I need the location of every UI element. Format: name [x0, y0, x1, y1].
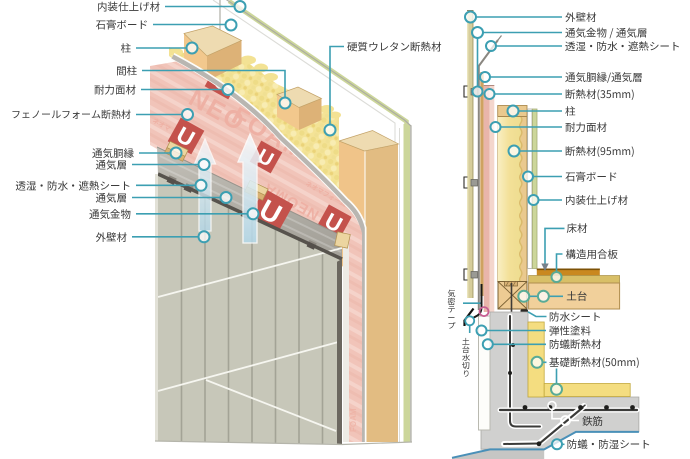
svg-text:通気層: 通気層 — [96, 158, 128, 173]
svg-text:耐力面材: 耐力面材 — [565, 120, 607, 135]
svg-text:内装仕上げ材: 内装仕上げ材 — [97, 0, 160, 15]
svg-text:鉄筋: 鉄筋 — [582, 414, 603, 429]
svg-text:耐力面材: 耐力面材 — [94, 83, 136, 98]
svg-text:基礎断熱材(50mm): 基礎断熱材(50mm) — [549, 355, 640, 370]
svg-text:土台水切り: 土台水切り — [461, 337, 472, 378]
svg-text:弾性塗料: 弾性塗料 — [549, 323, 591, 338]
svg-text:土台: 土台 — [567, 289, 588, 304]
svg-text:通気金物: 通気金物 — [89, 207, 131, 222]
svg-text:フェノールフォーム断熱材: フェノールフォーム断熱材 — [11, 106, 131, 121]
svg-text:外壁材: 外壁材 — [96, 230, 128, 245]
svg-text:硬質ウレタン断熱材: 硬質ウレタン断熱材 — [347, 40, 442, 55]
svg-text:防水シート: 防水シート — [549, 309, 602, 324]
svg-text:気密テープ: 気密テープ — [446, 289, 457, 329]
svg-text:通気層: 通気層 — [96, 191, 128, 206]
svg-text:石膏ボード: 石膏ボード — [565, 169, 618, 184]
svg-text:断熱材(95mm): 断熱材(95mm) — [565, 144, 635, 159]
svg-text:通気胴縁/通気層: 通気胴縁/通気層 — [565, 70, 643, 85]
svg-text:柱: 柱 — [565, 104, 576, 119]
svg-text:柱: 柱 — [121, 41, 132, 56]
svg-text:間柱: 間柱 — [116, 64, 137, 79]
svg-text:断熱材(35mm): 断熱材(35mm) — [565, 87, 635, 102]
svg-text:防蟻・防湿シート: 防蟻・防湿シート — [567, 437, 651, 452]
svg-text:透湿・防水・遮熱シート: 透湿・防水・遮熱シート — [565, 39, 681, 54]
svg-text:床材: 床材 — [567, 221, 588, 236]
svg-text:FOAM: FOAM — [348, 408, 359, 432]
svg-text:外壁材: 外壁材 — [565, 10, 597, 25]
svg-text:石膏ボード: 石膏ボード — [96, 18, 149, 33]
svg-text:防蟻断熱材: 防蟻断熱材 — [549, 337, 602, 352]
svg-text:内装仕上げ材: 内装仕上げ材 — [565, 193, 628, 208]
svg-text:構造用合板: 構造用合板 — [566, 247, 619, 262]
